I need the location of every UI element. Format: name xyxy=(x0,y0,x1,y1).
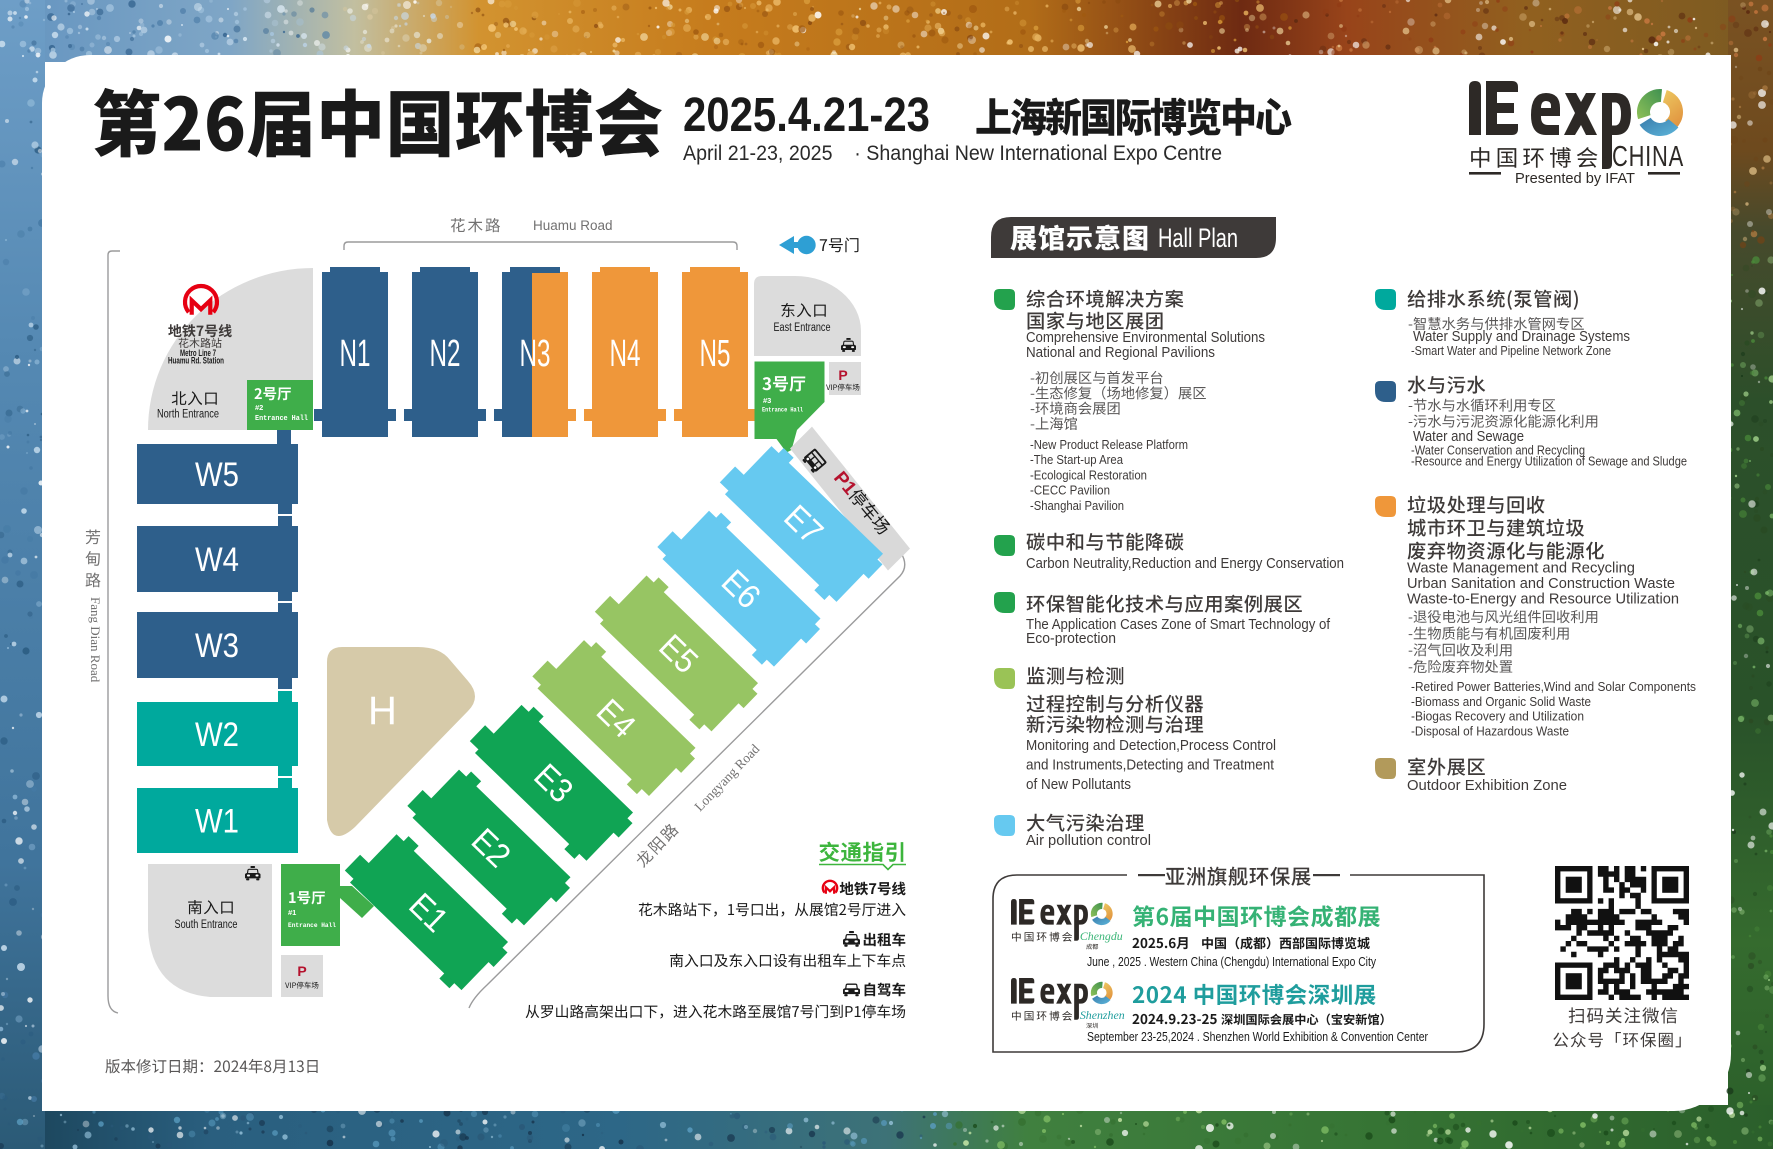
svg-text:Entrance Hall: Entrance Hall xyxy=(288,922,336,930)
svg-text:Huamu Rd. Station: Huamu Rd. Station xyxy=(168,356,224,366)
svg-text:W2: W2 xyxy=(195,716,239,754)
svg-text:-Ecological Restoration: -Ecological Restoration xyxy=(1030,467,1147,482)
svg-text:Carbon Neutrality,Reduction an: Carbon Neutrality,Reduction and Energy C… xyxy=(1026,556,1344,572)
svg-text:-Disposal of Hazardous Waste: -Disposal of Hazardous Waste xyxy=(1411,723,1569,738)
svg-text:North Entrance: North Entrance xyxy=(157,409,219,421)
svg-text:Comprehensive Environmental So: Comprehensive Environmental Solutions xyxy=(1026,330,1265,346)
svg-text:Outdoor Exhibition Zone: Outdoor Exhibition Zone xyxy=(1407,778,1567,794)
svg-text:Shenzhen: Shenzhen xyxy=(1080,1008,1125,1022)
svg-text:CHINA: CHINA xyxy=(1612,141,1684,173)
svg-text:N4: N4 xyxy=(610,333,641,375)
svg-text:National and Regional Pavilion: National and Regional Pavilions xyxy=(1026,345,1215,361)
svg-text:N3: N3 xyxy=(520,333,551,375)
svg-text:September 23-25,2024 . Shenzhe: September 23-25,2024 . Shenzhen World Ex… xyxy=(1087,1029,1429,1044)
svg-text:H: H xyxy=(368,689,397,733)
svg-text:Entrance Hall: Entrance Hall xyxy=(762,407,803,415)
svg-text:#3: #3 xyxy=(763,396,771,405)
svg-text:Hall Plan: Hall Plan xyxy=(1158,223,1238,253)
svg-text:-The Start-up Area: -The Start-up Area xyxy=(1030,452,1124,467)
svg-text:P: P xyxy=(297,963,306,979)
svg-text:Urban Sanitation and Construct: Urban Sanitation and Construction Waste xyxy=(1407,576,1675,592)
svg-text:East Entrance: East Entrance xyxy=(774,322,831,334)
svg-text:Fang Dian Road: Fang Dian Road xyxy=(88,597,103,683)
svg-text:Presented by IFAT: Presented by IFAT xyxy=(1515,170,1635,187)
svg-text:#2: #2 xyxy=(255,403,263,412)
svg-text:Eco-protection: Eco-protection xyxy=(1026,631,1116,647)
svg-text:Monitoring and Detection,Proce: Monitoring and Detection,Process Control xyxy=(1026,737,1276,754)
svg-text:of New Pollutants: of New Pollutants xyxy=(1026,776,1131,793)
svg-text:W5: W5 xyxy=(195,456,239,494)
svg-text:N5: N5 xyxy=(700,333,731,375)
svg-text:-New Product Release Platform: -New Product Release Platform xyxy=(1030,437,1188,452)
svg-text:-Biomass and Organic Solid Was: -Biomass and Organic Solid Waste xyxy=(1411,694,1591,709)
svg-text:April 21-23, 2025 · Shangha: April 21-23, 2025 · Shanghai New Interna… xyxy=(683,142,1222,165)
svg-text:Huamu Road: Huamu Road xyxy=(533,218,613,233)
svg-text:W1: W1 xyxy=(195,803,239,841)
svg-text:Waste Management and Recycling: Waste Management and Recycling xyxy=(1407,561,1635,577)
svg-text:#1: #1 xyxy=(288,908,296,917)
svg-text:and Instruments,Detecting and: and Instruments,Detecting and Treatment xyxy=(1026,757,1275,774)
svg-text:-Shanghai Pavilion: -Shanghai Pavilion xyxy=(1030,498,1124,513)
svg-text:W4: W4 xyxy=(195,541,239,579)
svg-text:Waste-to-Energy and Resource U: Waste-to-Energy and Resource Utilization xyxy=(1407,592,1679,608)
svg-text:Entrance Hall: Entrance Hall xyxy=(255,415,309,423)
svg-text:-Biogas Recovery and Utilizati: -Biogas Recovery and Utilization xyxy=(1411,709,1584,724)
svg-text:2025.4.21-23: 2025.4.21-23 xyxy=(683,89,930,142)
svg-text:N2: N2 xyxy=(430,333,461,375)
svg-text:-CECC Pavilion: -CECC Pavilion xyxy=(1030,483,1110,498)
svg-text:-Retired Power Batteries,Wind: -Retired Power Batteries,Wind and Solar … xyxy=(1411,679,1696,694)
svg-text:N1: N1 xyxy=(340,333,371,375)
svg-text:-Smart Water and Pipeline Netw: -Smart Water and Pipeline Network Zone xyxy=(1411,343,1611,358)
svg-text:South Entrance: South Entrance xyxy=(175,919,238,931)
svg-text:Chengdu: Chengdu xyxy=(1080,929,1123,943)
svg-text:-Resource and Energy Utilizati: -Resource and Energy Utilization of Sewa… xyxy=(1411,454,1687,469)
svg-text:P: P xyxy=(838,367,847,383)
svg-text:June , 2025 . Western China (C: June , 2025 . Western China (Chengdu) In… xyxy=(1087,954,1376,969)
svg-text:Air pollution control: Air pollution control xyxy=(1026,833,1151,849)
svg-text:W3: W3 xyxy=(195,627,239,665)
